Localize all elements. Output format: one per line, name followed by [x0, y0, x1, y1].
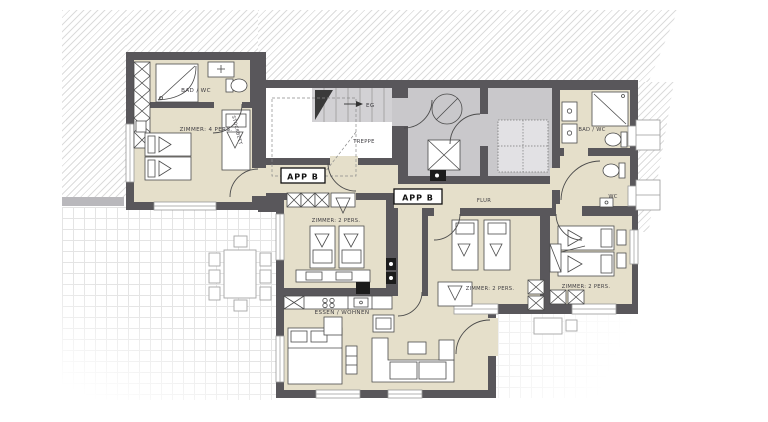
- label-bad-wc-right: BAD / WC: [578, 127, 605, 133]
- pillow: [601, 229, 612, 247]
- label-flur: FLUR: [477, 198, 491, 204]
- pillow: [148, 136, 155, 153]
- pillow: [313, 250, 332, 263]
- bench: [296, 270, 370, 282]
- kitchen-counter: [284, 296, 392, 309]
- pillow: [601, 255, 612, 273]
- shaft: [428, 140, 460, 170]
- label-app-b-1: APP B: [287, 173, 319, 182]
- outdoor-bench: [534, 318, 562, 334]
- bed: [558, 252, 614, 276]
- apartment-tag: APP B: [281, 168, 325, 183]
- side-table: [324, 317, 342, 335]
- bed: [558, 226, 614, 250]
- label-bad-wc-left: BAD / WC: [181, 88, 211, 94]
- floor-plan-canvas: BAD / WC ZIMMER: 4 PERS. TREPPE EG FLUR …: [0, 0, 768, 422]
- nightstand: [617, 253, 626, 268]
- label-app-b-2: APP B: [402, 194, 434, 203]
- bed: [145, 157, 191, 180]
- window: [126, 124, 134, 182]
- nightstand: [136, 121, 146, 132]
- pillow: [148, 160, 155, 177]
- floor-plan-drawing: BAD / WC ZIMMER: 4 PERS. TREPPE EG FLUR …: [0, 0, 768, 422]
- window: [388, 390, 422, 398]
- window: [276, 214, 284, 260]
- label-zimmer-4: ZIMMER: 4 PERS.: [180, 127, 233, 133]
- label-zimmer-2-left: ZIMMER: 2 PERS.: [312, 218, 361, 224]
- window: [154, 202, 216, 210]
- gray-room-double-bed: [498, 120, 548, 172]
- sofa-bed: [288, 328, 342, 384]
- bed: [339, 226, 364, 268]
- window: [276, 336, 284, 382]
- shower: [592, 92, 628, 126]
- window: [630, 230, 638, 264]
- label-zimmer-2-mid: ZIMMER: 2 PERS.: [466, 286, 515, 292]
- bed: [310, 226, 335, 268]
- coffee-table: [408, 342, 426, 354]
- floor-corridor-vertical: [398, 204, 422, 304]
- pillow: [456, 223, 474, 234]
- window: [316, 390, 360, 398]
- shower: [156, 64, 198, 102]
- outdoor-table: [224, 250, 256, 298]
- wall-junction-block: [356, 282, 370, 294]
- label-eg: EG: [366, 103, 375, 109]
- sink: [562, 124, 577, 143]
- toilet: [226, 79, 247, 92]
- pillow: [342, 250, 361, 263]
- label-essen-wohnen: ESSEN / WOHNEN: [315, 310, 370, 316]
- label-wc: WC: [608, 194, 617, 200]
- armchair: [373, 315, 394, 332]
- wardrobe: [287, 193, 329, 207]
- toilet: [605, 132, 627, 147]
- bed: [145, 133, 191, 156]
- apartment-tag: APP B: [394, 189, 442, 204]
- kitchen-sink: [354, 298, 368, 307]
- sink: [208, 62, 234, 77]
- nightstand: [617, 230, 626, 245]
- outdoor-wall-strip: [62, 197, 124, 206]
- bed: [484, 220, 510, 270]
- label-treppe: TREPPE: [352, 139, 374, 145]
- sink: [562, 102, 577, 121]
- label-zimmer-2-right: ZIMMER: 2 PERS.: [562, 284, 611, 290]
- pillow: [488, 223, 506, 234]
- shelf: [346, 346, 357, 374]
- outdoor-stool: [566, 320, 577, 331]
- window: [572, 304, 616, 314]
- toilet: [603, 163, 625, 178]
